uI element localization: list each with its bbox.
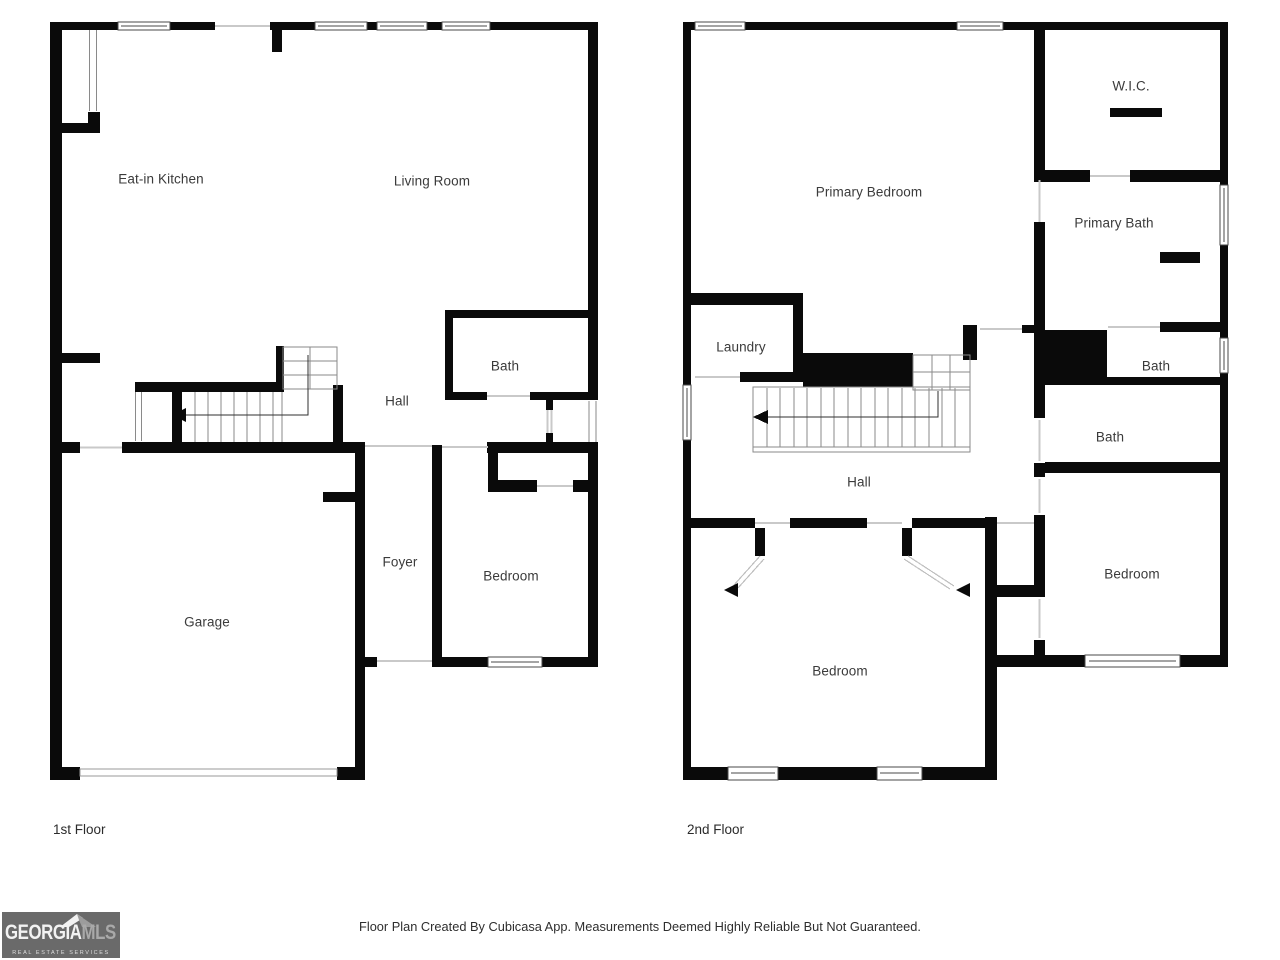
room-label-bath-f1: Bath bbox=[491, 359, 519, 374]
floor2-title: 2nd Floor bbox=[687, 822, 744, 837]
room-label-garage: Garage bbox=[184, 615, 230, 630]
floor1-plan bbox=[50, 22, 598, 780]
room-label-bedroom-east: Bedroom bbox=[1104, 567, 1159, 582]
room-label-primary-bath: Primary Bath bbox=[1074, 216, 1153, 231]
door-swing-arrow bbox=[956, 583, 970, 597]
floor2-plan bbox=[683, 22, 1228, 780]
stair-direction-arrow bbox=[753, 410, 768, 424]
stair-void bbox=[803, 353, 913, 387]
door-swing-arrow bbox=[724, 583, 738, 597]
room-label-laundry: Laundry bbox=[716, 340, 766, 355]
room-label-wic: W.I.C. bbox=[1112, 79, 1149, 94]
floor2-stairs bbox=[753, 353, 970, 452]
room-label-foyer: Foyer bbox=[382, 555, 417, 570]
floor1-stairs bbox=[172, 347, 337, 442]
room-label-primary-bedroom: Primary Bedroom bbox=[816, 185, 923, 200]
logo-brand-primary: GEORGIA bbox=[5, 921, 82, 944]
floor-plan-drawing bbox=[0, 0, 1280, 960]
garage-door bbox=[80, 769, 337, 776]
room-label-eat-in-kitchen: Eat-in Kitchen bbox=[118, 172, 203, 187]
georgia-mls-logo: GEORGIAMLS REAL ESTATE SERVICES bbox=[2, 912, 120, 958]
room-label-bedroom-south: Bedroom bbox=[812, 664, 867, 679]
room-label-bedroom-f1: Bedroom bbox=[483, 569, 538, 584]
logo-brand: GEORGIAMLS bbox=[5, 921, 99, 945]
floor1-title: 1st Floor bbox=[53, 822, 106, 837]
room-label-bath-lower: Bath bbox=[1096, 430, 1124, 445]
floor-plan-page: Eat-in Kitchen Living Room Bath Hall Foy… bbox=[0, 0, 1280, 960]
room-label-hall-f2: Hall bbox=[847, 475, 871, 490]
floor2-door-swings bbox=[724, 556, 970, 597]
closet-rod bbox=[1110, 108, 1162, 117]
room-label-bath-upper: Bath bbox=[1142, 359, 1170, 374]
logo-brand-secondary: MLS bbox=[82, 921, 116, 944]
room-label-living-room: Living Room bbox=[394, 174, 470, 189]
disclaimer-text: Floor Plan Created By Cubicasa App. Meas… bbox=[0, 919, 1280, 934]
logo-tagline: REAL ESTATE SERVICES bbox=[2, 950, 120, 956]
floor1-windows bbox=[118, 22, 542, 667]
room-label-hall-f1: Hall bbox=[385, 394, 409, 409]
